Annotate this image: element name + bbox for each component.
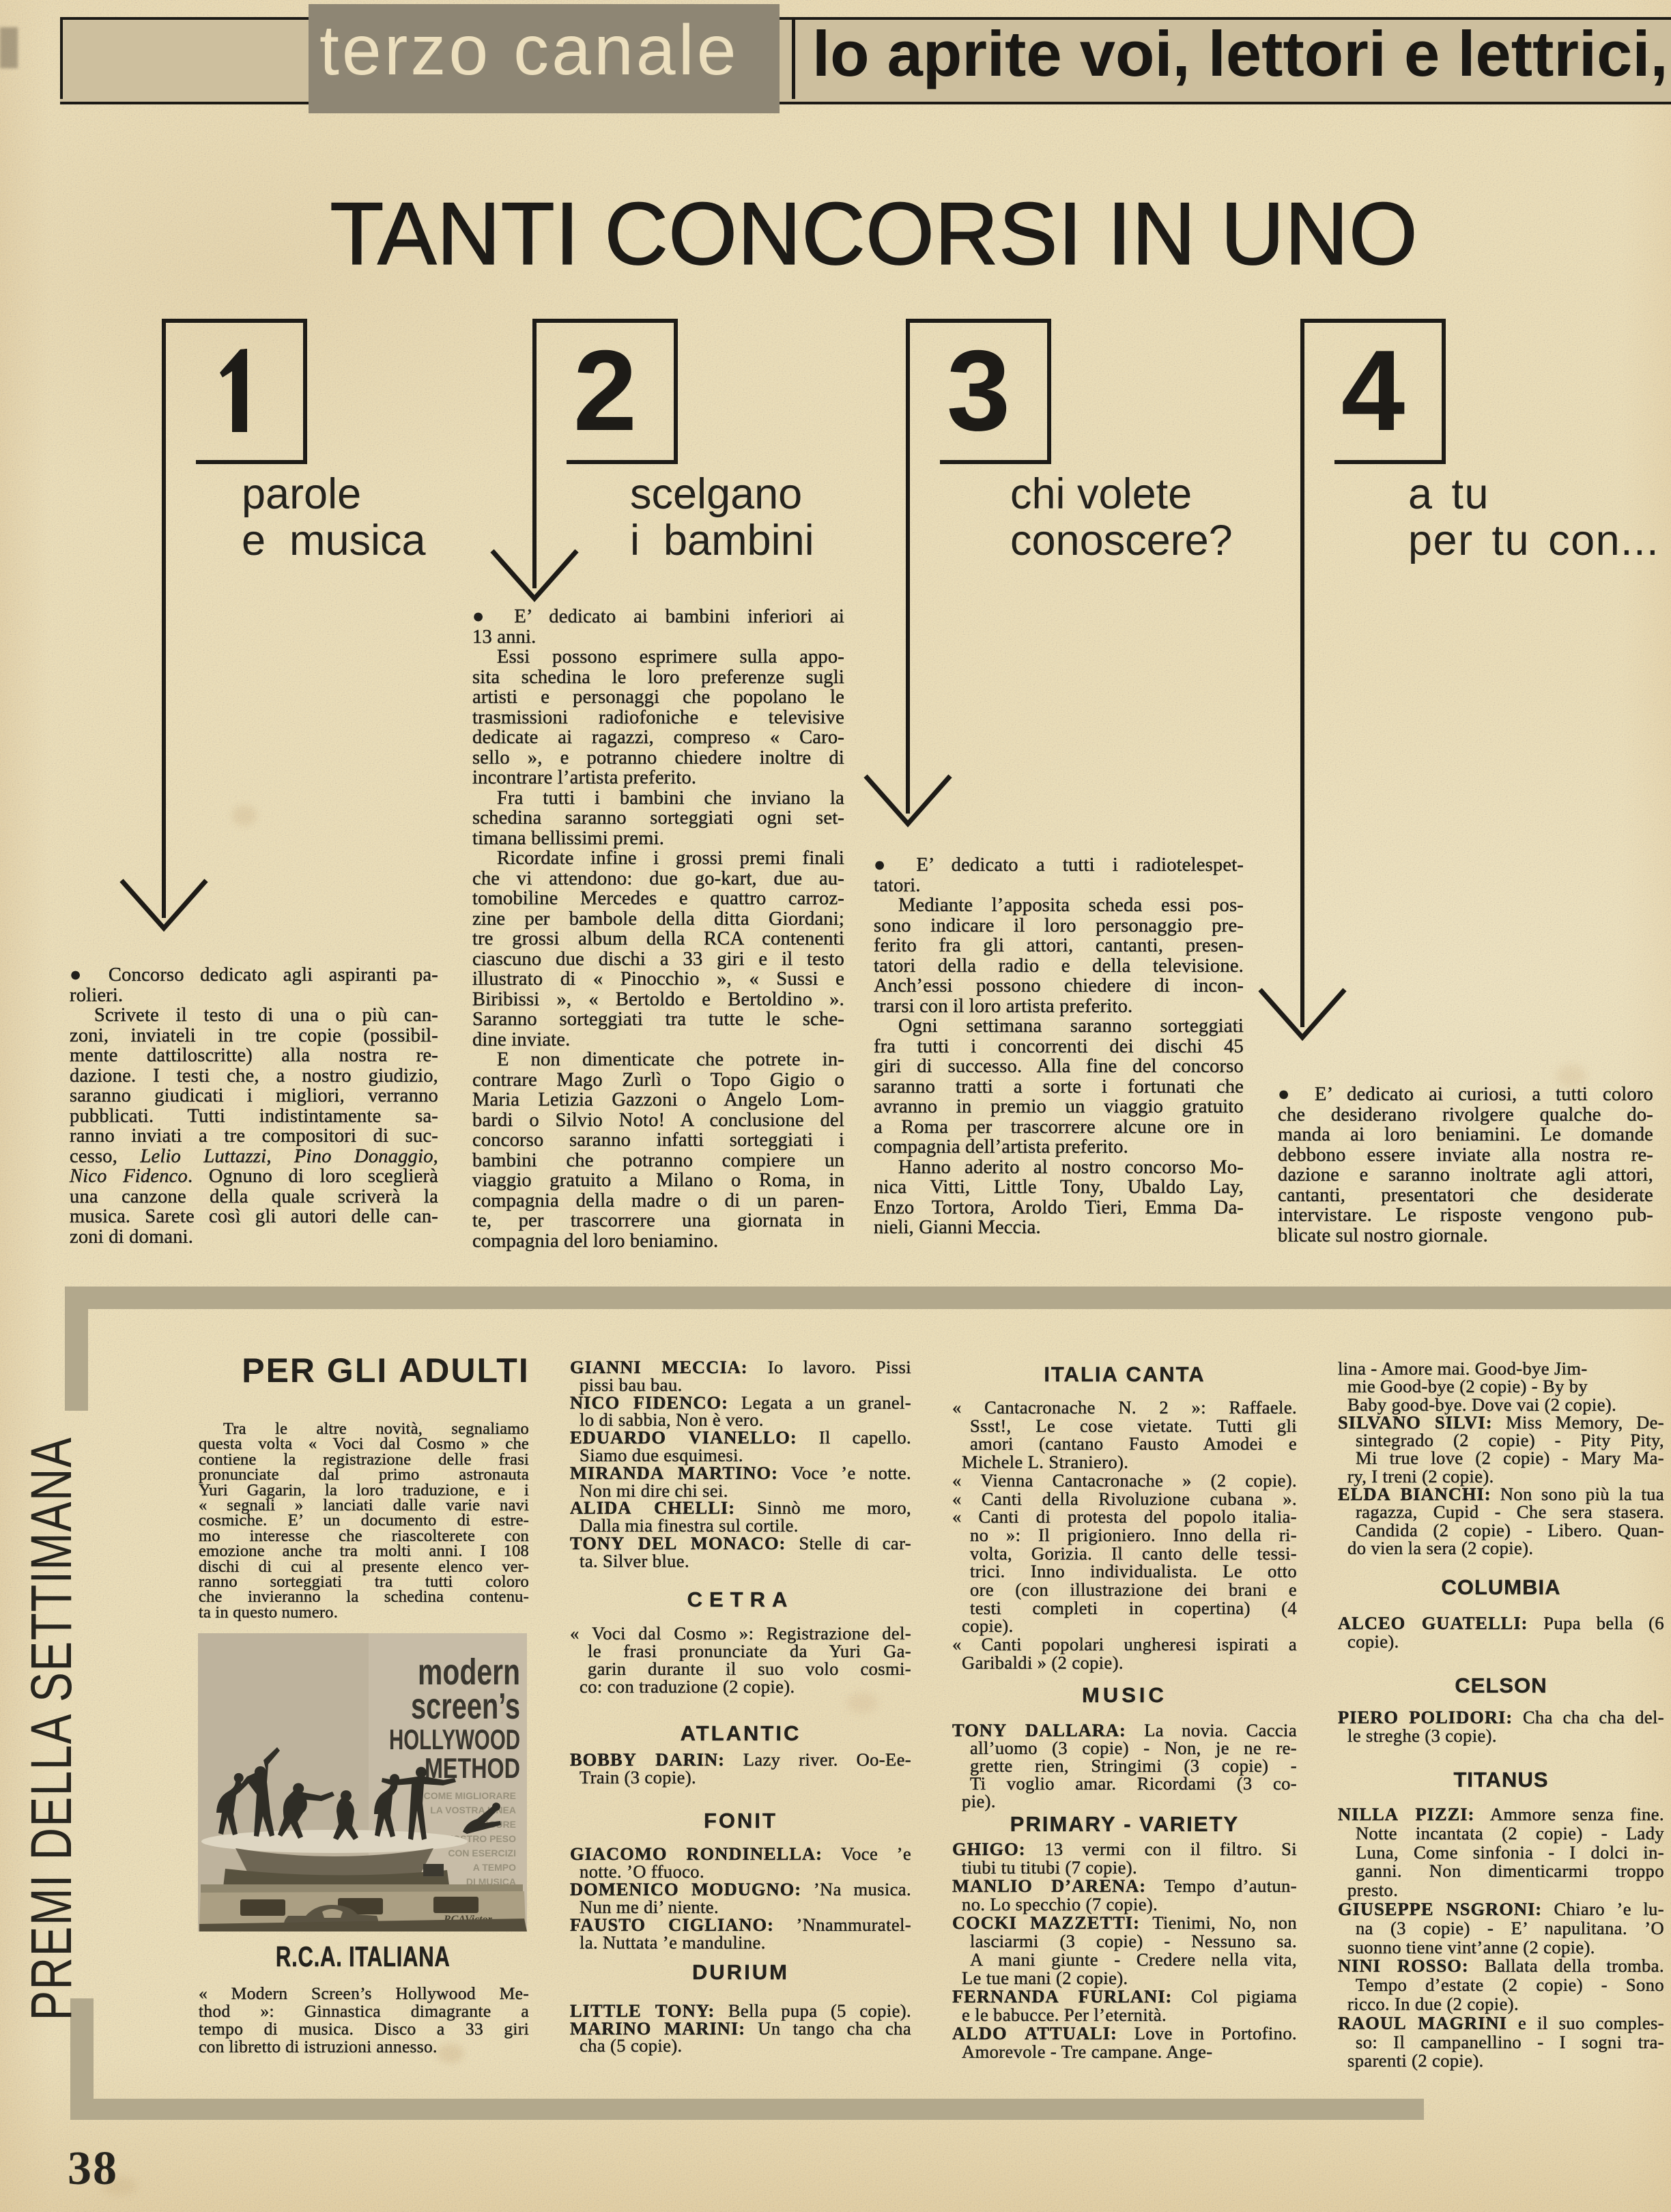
svg-text:COME MIGLIORARE: COME MIGLIORARE	[424, 1790, 516, 1801]
svg-text:LA VOSTRA LINEA: LA VOSTRA LINEA	[430, 1805, 516, 1815]
svg-text:HOLLYWOOD: HOLLYWOOD	[389, 1723, 520, 1755]
svg-text:screen’s: screen’s	[411, 1686, 520, 1727]
svg-text:CON ESERCIZI: CON ESERCIZI	[448, 1848, 516, 1858]
svg-text:A TEMPO: A TEMPO	[473, 1862, 516, 1873]
